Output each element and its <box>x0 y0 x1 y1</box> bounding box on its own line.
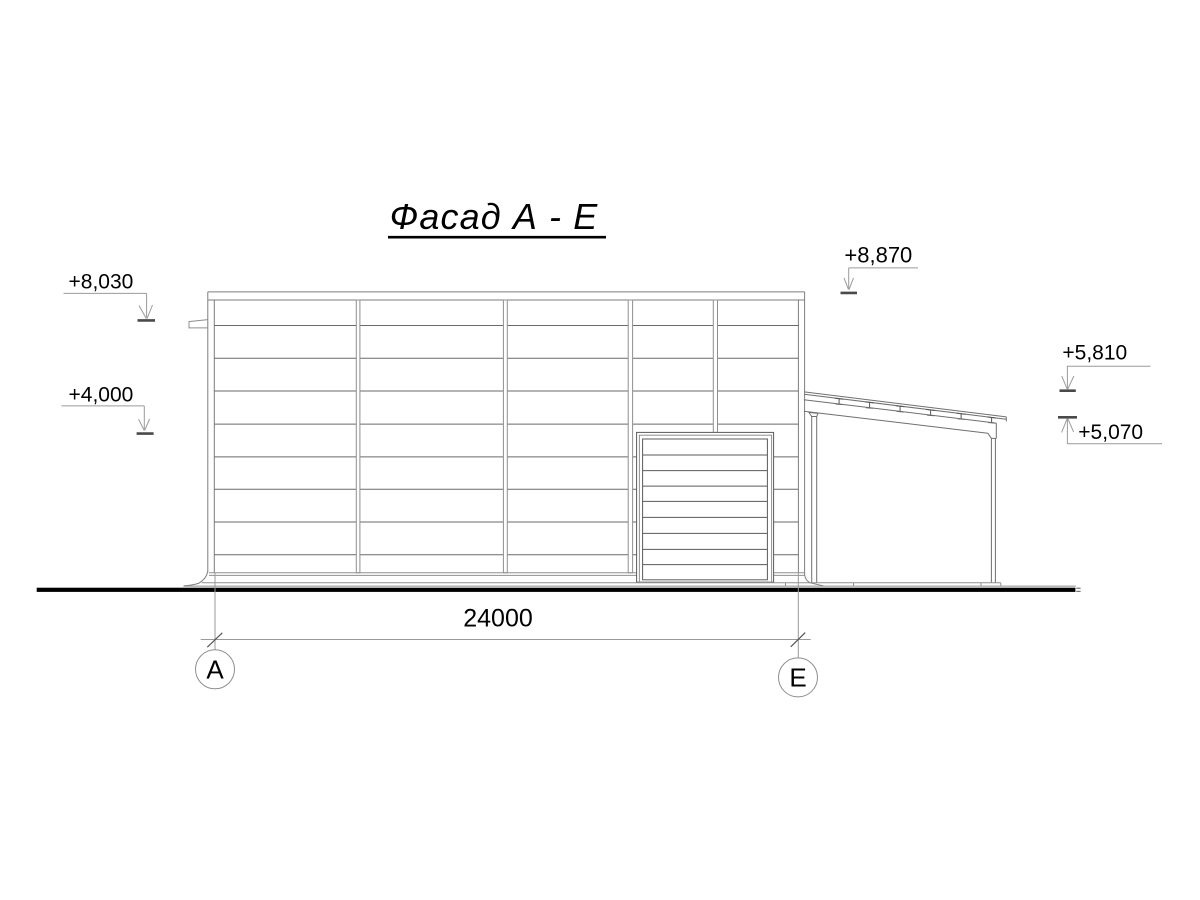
svg-text:Фасад А - Е: Фасад А - Е <box>390 196 599 237</box>
svg-text:А: А <box>206 655 224 685</box>
svg-text:+5,070: +5,070 <box>1078 421 1143 444</box>
svg-text:+8,870: +8,870 <box>844 242 912 267</box>
svg-text:+5,810: +5,810 <box>1062 341 1127 364</box>
svg-text:+4,000: +4,000 <box>69 383 134 406</box>
svg-text:Е: Е <box>789 663 806 693</box>
svg-text:24000: 24000 <box>463 604 533 632</box>
svg-text:+8,030: +8,030 <box>69 270 134 293</box>
